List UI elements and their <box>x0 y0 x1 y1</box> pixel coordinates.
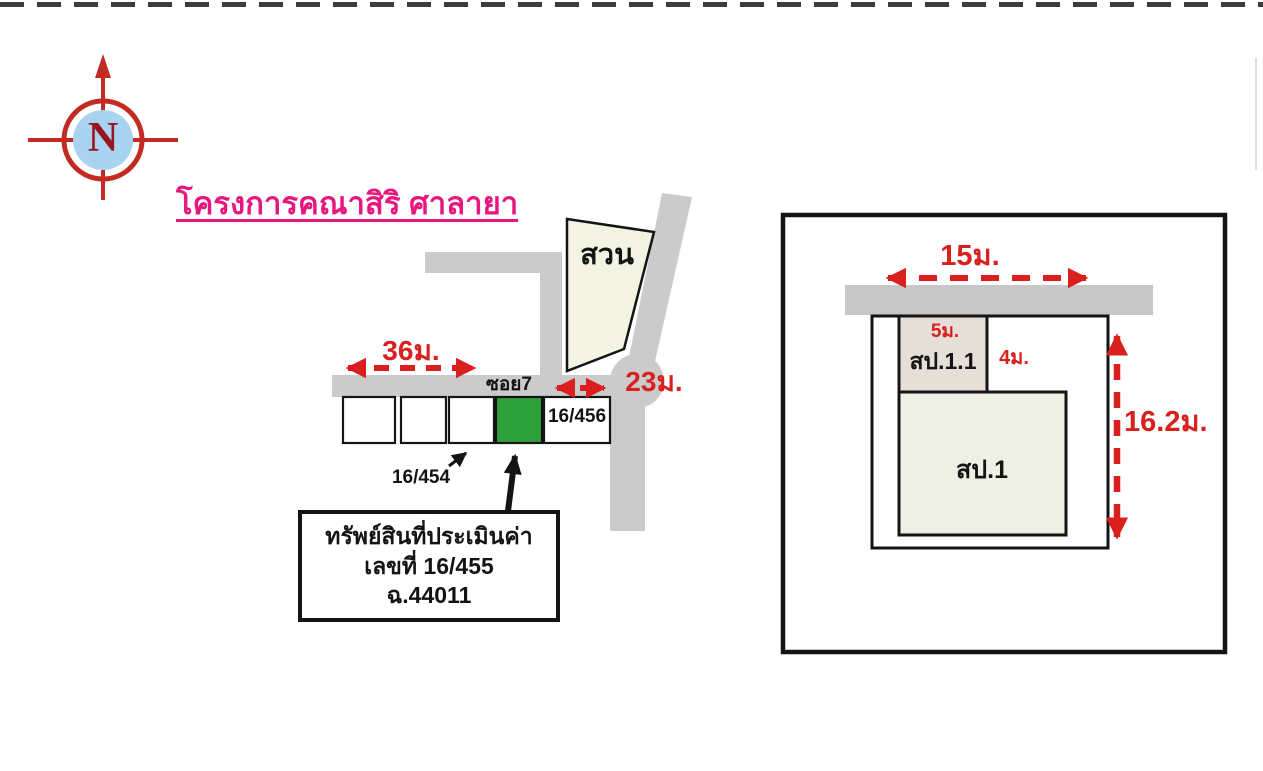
compass-north-arrowhead <box>95 54 111 78</box>
pointer-arrow-16-454 <box>449 453 466 466</box>
dimension-label-23m: 23ม. <box>616 367 692 396</box>
plot-16-456-label: 16/456 <box>545 407 609 427</box>
callout-line-1: ทรัพย์สินที่ประเมินค่า <box>325 523 532 549</box>
plot-1 <box>343 397 395 443</box>
building-sp-1-1-label: สป.1.1 <box>899 349 987 373</box>
park-label: สวน <box>575 240 639 270</box>
building-sp-1-label: สป.1 <box>947 457 1017 483</box>
road-vertical <box>540 252 562 379</box>
plot-16-454 <box>449 397 494 443</box>
soi7-label: ซอย7 <box>479 375 539 395</box>
pointer-arrow-subject-plot <box>508 456 515 511</box>
callout-line-2: เลขที่ 16/455 <box>364 553 494 579</box>
subject-property-callout-box: ทรัพย์สินที่ประเมินค่า เลขที่ 16/455 ฉ.4… <box>298 510 560 622</box>
plot-2 <box>401 397 446 443</box>
project-title: โครงการคณาสิริ ศาลายา <box>176 178 518 228</box>
road-top <box>425 252 560 273</box>
plot-subject-16-455 <box>496 397 542 443</box>
detail-road-bar <box>845 285 1153 315</box>
dimension-label-36m: 36ม. <box>373 336 449 365</box>
plot-16-454-label: 16/454 <box>387 468 455 488</box>
dimension-label-5m: 5ม. <box>920 322 970 342</box>
compass-letter: N <box>83 117 123 159</box>
callout-line-3: ฉ.44011 <box>387 582 472 608</box>
dimension-label-4m: 4ม. <box>990 348 1038 369</box>
dimension-label-15m: 15ม. <box>928 241 1012 271</box>
scanned-survey-page: N โครงการคณาสิริ ศาลายา สวน 36ม. ซอย7 23… <box>0 0 1263 771</box>
dimension-label-16-2m: 16.2ม. <box>1124 407 1228 437</box>
